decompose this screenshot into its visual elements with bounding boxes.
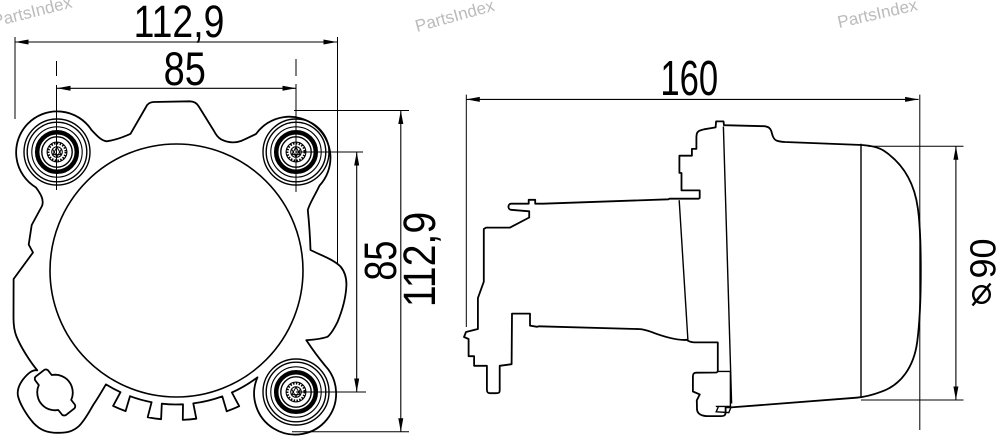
svg-text:112,9: 112,9 (134, 0, 225, 47)
svg-text:160: 160 (660, 51, 718, 107)
svg-text:85: 85 (164, 43, 206, 96)
svg-text:112,9: 112,9 (395, 212, 445, 307)
svg-text:90: 90 (963, 238, 1000, 278)
